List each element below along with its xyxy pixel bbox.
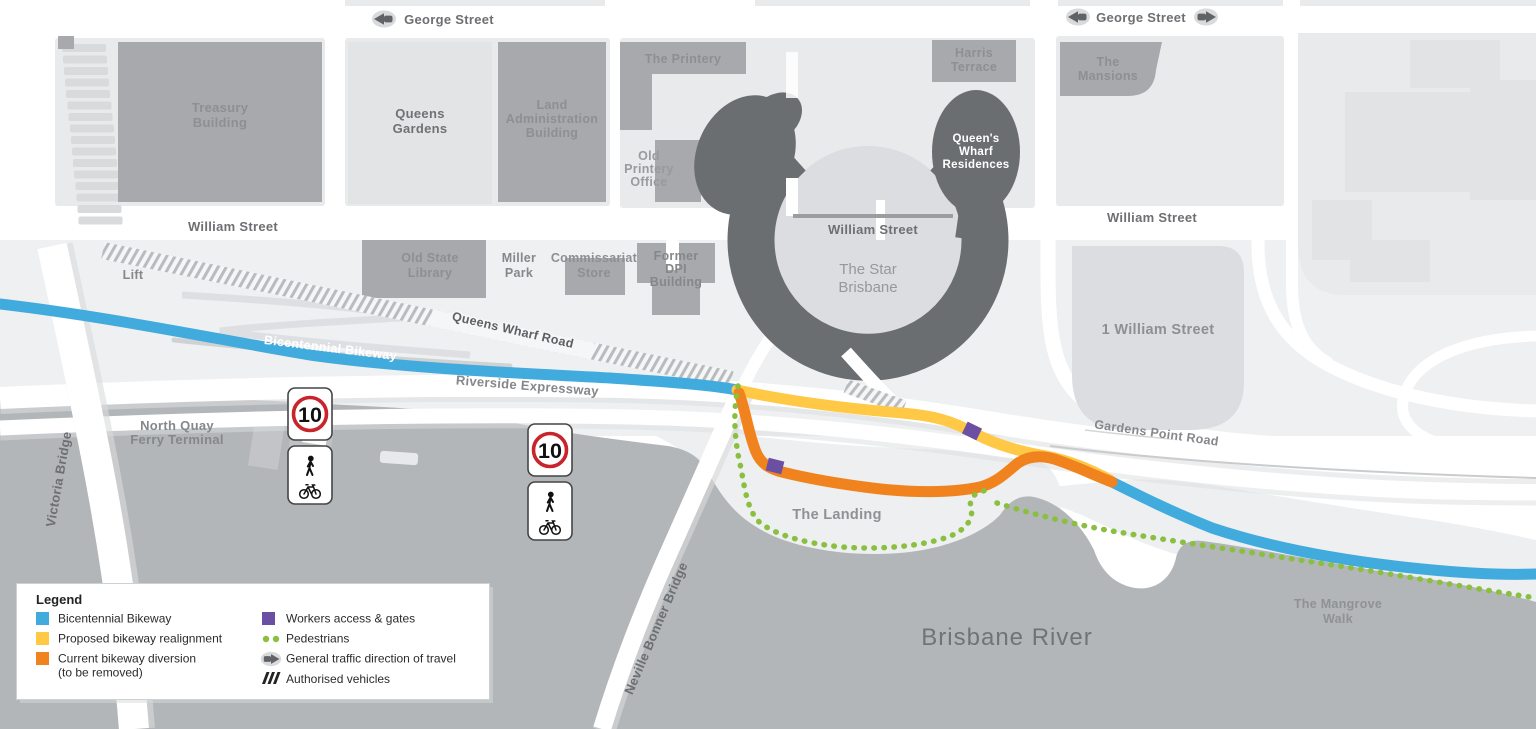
one-william-street-shape — [1072, 246, 1244, 430]
svg-text:Printery: Printery — [624, 162, 674, 176]
svg-text:Building: Building — [193, 115, 247, 130]
legend: Legend Bicentennial Bikeway Proposed bik… — [17, 584, 494, 704]
legend-traffic-arrow-icon — [261, 652, 281, 666]
svg-text:(to be removed): (to be removed) — [58, 666, 143, 680]
svg-text:Pedestrians: Pedestrians — [286, 632, 349, 646]
william-street-line — [793, 214, 953, 218]
william-street-centre-label: William Street — [828, 222, 918, 237]
george-east-left-arrow-icon — [1066, 9, 1090, 26]
svg-text:1 William Street: 1 William Street — [1102, 322, 1215, 338]
svg-text:The Star: The Star — [839, 261, 897, 278]
svg-text:Library: Library — [408, 266, 452, 280]
legend-swatch-workers — [262, 612, 275, 625]
bikeway-diversion-map: 10 — [0, 0, 1536, 729]
legend-swatch-realignment — [36, 632, 49, 645]
legend-swatch-bikeway — [36, 612, 49, 625]
brisbane-river-label: Brisbane River — [921, 624, 1092, 651]
legend-dot-pedestrians-2 — [273, 636, 279, 642]
svg-text:Bicentennial Bikeway: Bicentennial Bikeway — [58, 612, 171, 626]
george-east-right-arrow-icon — [1194, 9, 1218, 26]
svg-text:Workers access & gates: Workers access & gates — [286, 612, 415, 626]
svg-text:Building: Building — [526, 126, 578, 140]
speed-limit-sign-west — [288, 388, 332, 504]
george-street-west-label: George Street — [404, 12, 494, 27]
svg-text:The Landing: The Landing — [792, 507, 882, 523]
svg-text:DPI: DPI — [665, 262, 687, 276]
svg-text:Park: Park — [505, 266, 533, 280]
svg-text:Administration: Administration — [506, 112, 598, 126]
svg-text:Brisbane: Brisbane — [838, 279, 897, 296]
svg-text:Queen's: Queen's — [952, 133, 999, 145]
svg-text:Residences: Residences — [943, 159, 1010, 171]
svg-text:Old: Old — [638, 149, 660, 163]
top-block-strips — [345, 0, 1536, 6]
svg-text:Proposed bikeway realignment: Proposed bikeway realignment — [58, 632, 223, 646]
svg-text:Authorised vehicles: Authorised vehicles — [286, 672, 390, 686]
svg-text:Former: Former — [654, 249, 699, 263]
svg-text:Store: Store — [577, 266, 610, 280]
legend-dot-pedestrians-1 — [263, 636, 269, 642]
svg-text:The Printery: The Printery — [645, 52, 722, 66]
svg-text:Walk: Walk — [1323, 612, 1353, 626]
legend-title: Legend — [36, 592, 82, 607]
svg-text:General traffic direction of t: General traffic direction of travel — [286, 652, 456, 666]
svg-text:North Quay: North Quay — [140, 418, 214, 433]
svg-text:Building: Building — [650, 275, 702, 289]
svg-text:Mansions: Mansions — [1078, 69, 1138, 83]
svg-text:Terrace: Terrace — [951, 60, 997, 74]
svg-text:The Mangrove: The Mangrove — [1294, 597, 1382, 611]
svg-text:Commissariat: Commissariat — [551, 251, 638, 265]
svg-text:Office: Office — [630, 175, 667, 189]
svg-text:The: The — [1096, 55, 1119, 69]
svg-text:Land: Land — [536, 98, 567, 112]
william-street-east-label: William Street — [1107, 210, 1197, 225]
svg-text:Current bikeway diversion: Current bikeway diversion — [58, 652, 196, 666]
svg-text:Lift: Lift — [123, 268, 144, 282]
speed-limit-sign-east — [528, 424, 572, 540]
svg-text:Gardens: Gardens — [393, 121, 448, 136]
legend-swatch-diversion — [36, 652, 49, 665]
svg-text:Wharf: Wharf — [959, 146, 993, 158]
svg-text:Harris: Harris — [955, 46, 993, 60]
svg-text:Treasury: Treasury — [192, 100, 249, 115]
george-west-arrow-icon — [372, 11, 396, 28]
traffic-direction-arrows — [372, 9, 1218, 28]
svg-text:Ferry Terminal: Ferry Terminal — [130, 432, 224, 447]
map-canvas: 10 — [0, 0, 1536, 729]
svg-text:Queens: Queens — [395, 106, 444, 121]
svg-text:Old State: Old State — [401, 251, 459, 265]
william-street-west-label: William Street — [188, 219, 278, 234]
george-street-east-label: George Street — [1096, 10, 1186, 25]
svg-text:Miller: Miller — [502, 251, 536, 265]
